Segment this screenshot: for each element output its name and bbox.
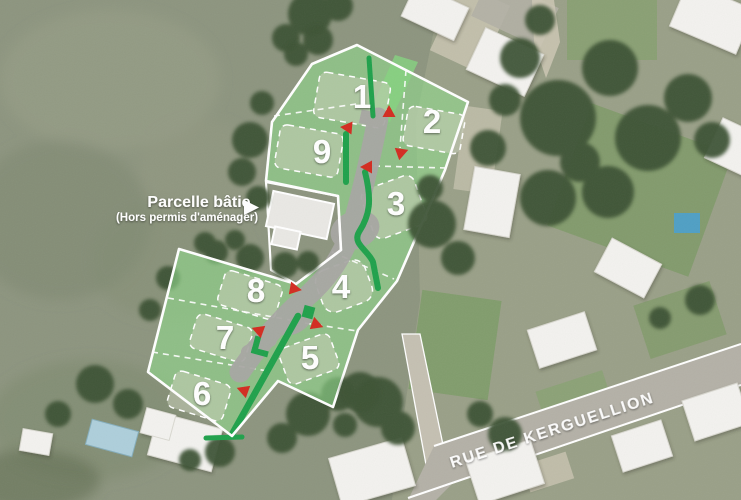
aerial-development-map: 1 2 3 4 5 6 7 8 9 Parcelle bâtie (Hors p…	[0, 0, 741, 500]
grain-texture	[0, 0, 741, 500]
